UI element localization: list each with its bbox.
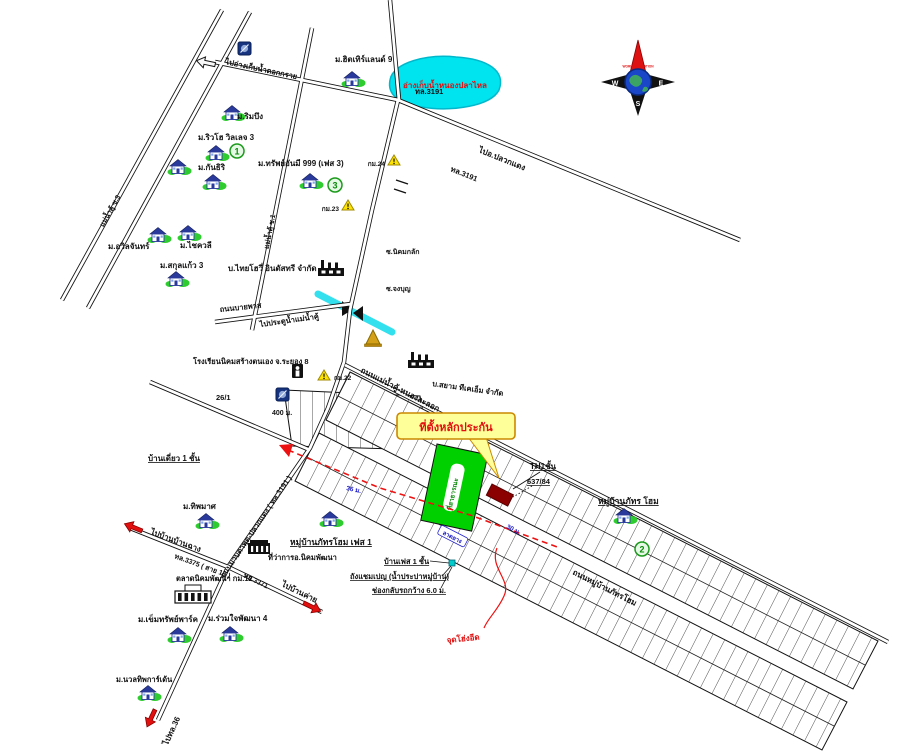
village-label: ม.ทรัพย์อันมี 999 (เฟส 3) bbox=[258, 158, 344, 168]
svg-text:2: 2 bbox=[639, 545, 644, 555]
village-label: ม.ไชควลี bbox=[180, 240, 212, 250]
house-icon bbox=[168, 628, 192, 644]
house-icon bbox=[168, 160, 192, 176]
km22-marker bbox=[318, 370, 330, 380]
house-icon bbox=[220, 627, 244, 643]
place-icon bbox=[238, 42, 251, 55]
house-icon bbox=[166, 272, 190, 288]
village-label: หมู่บ้านภัทร โฮม bbox=[598, 496, 659, 507]
soi-label: แม่น้ำคู้ ซ.1 bbox=[260, 213, 278, 250]
temple-icon bbox=[365, 330, 382, 347]
village-label: ม.ร่วมใจพัฒนา 4 bbox=[208, 613, 268, 623]
sketch-map-page: อ่างเก็บน้ำหนองปลาไหล bbox=[0, 0, 900, 751]
village-label: ม.ทิพมาศ bbox=[183, 502, 217, 511]
village-label: ม.ริมบึง bbox=[237, 112, 263, 121]
district-office-icon bbox=[248, 540, 270, 554]
compass-rose: N W E S WORLD VALUATION bbox=[601, 40, 675, 116]
place-icon bbox=[276, 388, 289, 401]
soi-label: แม่น้ำคู้ ซ.3 bbox=[96, 192, 124, 229]
house-icon bbox=[203, 175, 227, 191]
km24-marker bbox=[388, 155, 400, 165]
culvert-marks bbox=[394, 180, 408, 193]
collateral-label: ที่ตั้งหลักประกัน bbox=[419, 419, 493, 434]
house-icon bbox=[178, 226, 202, 242]
note-label: ช่องกลับรถกว้าง 6.0 ม. bbox=[372, 586, 446, 595]
svg-text:3: 3 bbox=[332, 181, 337, 191]
market-icon bbox=[175, 585, 211, 603]
road-label: ไปอ่างเก็บน้ำดอกกราย bbox=[224, 55, 299, 81]
location-map: อ่างเก็บน้ำหนองปลาไหล bbox=[0, 0, 900, 751]
note-label: ถังแชมเปญ (น้ำประปาหมู่บ้าน) bbox=[350, 570, 449, 582]
road-label: ทล.3191 bbox=[449, 165, 479, 184]
house-icon bbox=[342, 72, 366, 88]
stream bbox=[318, 294, 392, 332]
distance-label: 400 ม. bbox=[272, 410, 292, 417]
plot-label: 637/84 bbox=[527, 477, 551, 486]
house-icon bbox=[148, 228, 172, 244]
km-label: กม.23 bbox=[322, 206, 340, 213]
house-icon bbox=[138, 686, 162, 702]
reservoir: อ่างเก็บน้ำหนองปลาไหล bbox=[390, 56, 501, 108]
village-label: ม.สกุลแก้ว 3 bbox=[160, 260, 204, 271]
village-label: ม.นวลทิพการ์เด้น bbox=[116, 675, 173, 684]
village-label: ม.อวิลจันทร์ bbox=[108, 241, 150, 251]
road-label: ถนนมาบตาพุด-ปลวกแดง ( ทล.3191 ) bbox=[218, 473, 293, 579]
market-label: ตลาดนิคมพัฒนา กม.12 bbox=[176, 574, 253, 583]
svg-text:S: S bbox=[636, 101, 641, 108]
village-label: หมู่บ้านภัทรโฮม เฟส 1 bbox=[290, 537, 372, 548]
district-label: ที่ว่าการอ.นิคมพัฒนา bbox=[268, 551, 337, 562]
road-label: ทล.3191 bbox=[415, 87, 443, 96]
school-sign-icon bbox=[292, 364, 303, 378]
km-label: กม.22 bbox=[334, 375, 352, 382]
hong-eed-label: จุดโฮ่งอีด bbox=[446, 632, 480, 646]
school-label: โรงเรียนนิคมสร้างตนเอง จ.ระยอง 8 bbox=[192, 356, 309, 366]
factory-icon bbox=[408, 352, 434, 368]
water-tank-marker bbox=[449, 560, 455, 566]
svg-text:W: W bbox=[612, 81, 619, 88]
direction-label: ไปทล.36 bbox=[160, 714, 183, 747]
village-label: ม.ริวโฮ วิลเลจ 3 bbox=[198, 132, 255, 142]
house-icon bbox=[206, 146, 230, 162]
house-icon bbox=[320, 512, 344, 528]
village-label: ม.กันธิริ bbox=[198, 163, 226, 172]
compass-brand: WORLD VALUATION bbox=[622, 65, 654, 69]
km-label: กม.24 bbox=[368, 161, 386, 168]
address-label: 26/1 bbox=[216, 393, 231, 402]
plot-label: TH1ชั้น bbox=[530, 460, 557, 471]
company-label: บ.ไทยโฮวี่ อินดัสทรี จำกัด bbox=[228, 262, 317, 273]
svg-text:1: 1 bbox=[234, 147, 239, 157]
house-icon bbox=[300, 174, 324, 190]
soi-label: ซ.นิคมกลัก bbox=[386, 248, 420, 256]
house-icon bbox=[196, 514, 220, 530]
factory-icon bbox=[318, 260, 344, 276]
svg-text:E: E bbox=[659, 81, 664, 88]
route-arrowhead bbox=[279, 444, 293, 457]
soi-label: ซ.จงบุญ bbox=[386, 286, 411, 293]
direction-arrow-icon bbox=[195, 55, 216, 70]
company-label: บ.สยาม ทีเคเอ็ม จำกัด bbox=[432, 378, 505, 398]
note-label: บ้านเดี่ยว 1 ชั้น bbox=[148, 452, 200, 463]
km23-marker bbox=[342, 200, 354, 210]
village-label: ม.เข็มทรัพย์พาร์ค bbox=[138, 613, 198, 624]
note-label: บ้านเฟส 1 ชั้น bbox=[384, 555, 430, 566]
village-label: ม.ฮิตเทิร์แลนด์ 9 bbox=[335, 54, 393, 64]
